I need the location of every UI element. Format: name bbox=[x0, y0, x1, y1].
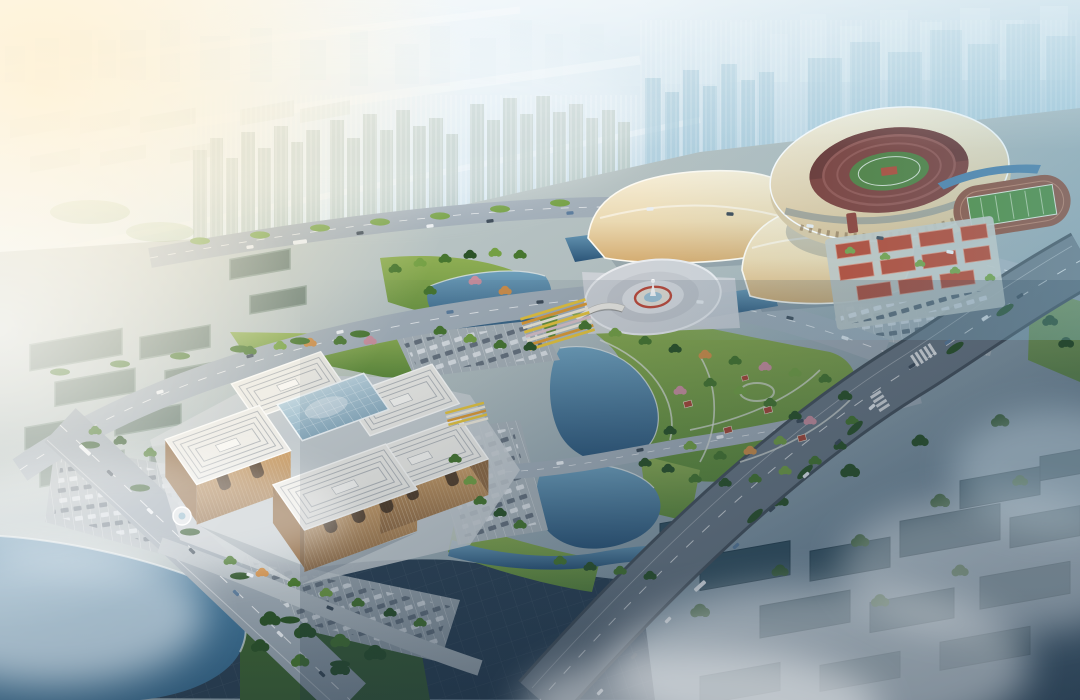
rendering-canvas: Aerial architectural rendering of a civi… bbox=[0, 0, 1080, 700]
aerial-rendering: Aerial architectural rendering of a civi… bbox=[0, 0, 1080, 700]
